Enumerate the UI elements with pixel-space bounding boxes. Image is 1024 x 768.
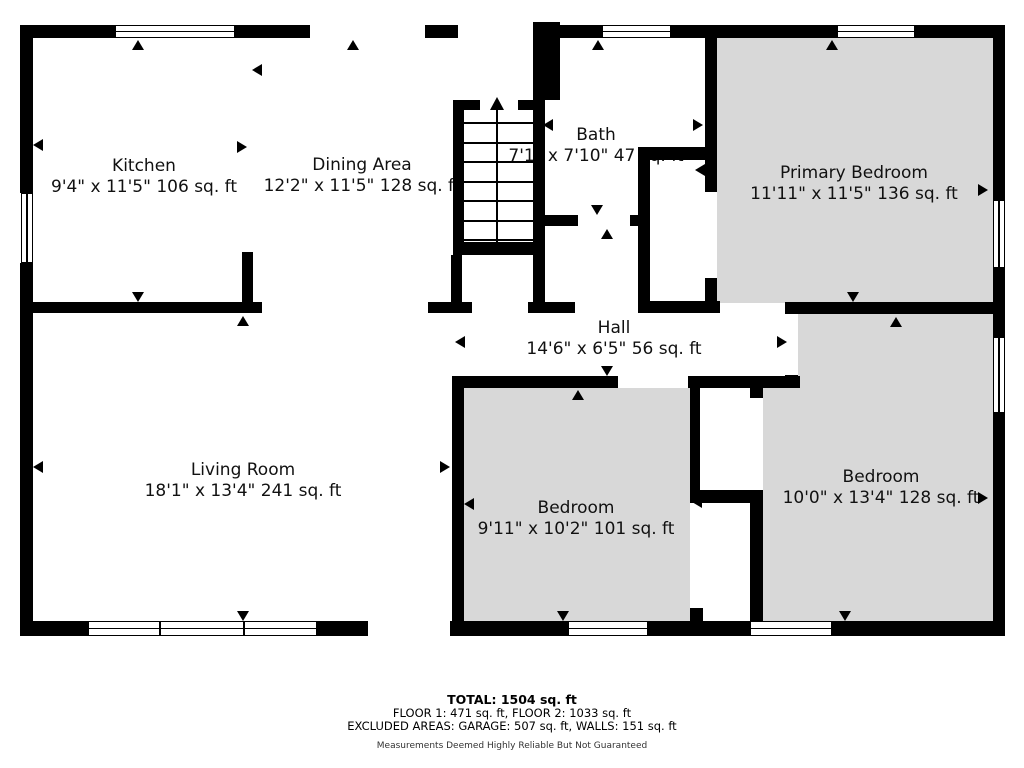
room-label-dining-area: Dining Area 12'2" x 11'5" 128 sq. ft <box>264 155 461 197</box>
wall-segment <box>705 278 717 303</box>
window <box>160 621 244 636</box>
marker-arrow-icon <box>592 40 604 50</box>
window <box>568 621 648 636</box>
marker-arrow-icon <box>692 496 702 508</box>
wall-segment <box>317 621 368 636</box>
marker-arrow-icon <box>695 164 705 176</box>
room-label-kitchen: Kitchen 9'4" x 11'5" 106 sq. ft <box>51 156 237 198</box>
wall-segment <box>638 301 720 313</box>
marker-arrow-icon <box>978 184 988 196</box>
marker-arrow-icon <box>132 292 144 302</box>
marker-arrow-icon <box>347 40 359 50</box>
wall-segment <box>638 147 650 307</box>
marker-arrow-icon <box>237 316 249 326</box>
stair-tread <box>464 161 533 163</box>
marker-arrow-icon <box>826 40 838 50</box>
room-dimensions: 9'11" x 10'2" 101 sq. ft <box>478 519 675 540</box>
room-name: Dining Area <box>264 155 461 176</box>
wall-segment <box>993 413 1005 636</box>
wall-segment <box>450 621 568 636</box>
area-summary: TOTAL: 1504 sq. ft FLOOR 1: 471 sq. ft, … <box>0 693 1024 752</box>
window <box>750 621 832 636</box>
wall-segment <box>688 376 800 388</box>
window <box>88 621 160 636</box>
marker-arrow-icon <box>753 494 763 506</box>
marker-arrow-icon <box>572 390 584 400</box>
marker-arrow-icon <box>601 229 613 239</box>
wall-segment <box>20 25 33 193</box>
room-name: Kitchen <box>51 156 237 177</box>
room-name: Bedroom <box>783 467 980 488</box>
wall-segment <box>453 242 545 255</box>
room-dimensions: 10'0" x 13'4" 128 sq. ft <box>783 488 980 509</box>
stair-tread <box>464 220 533 222</box>
marker-arrow-icon <box>839 611 851 621</box>
wall-segment <box>705 160 717 192</box>
marker-arrow-icon <box>33 461 43 473</box>
room-label-living-room: Living Room 18'1" x 13'4" 241 sq. ft <box>145 460 342 502</box>
excluded-areas-text: EXCLUDED AREAS: GARAGE: 507 sq. ft, WALL… <box>0 720 1024 733</box>
wall-segment <box>832 621 1005 636</box>
wall-segment <box>452 376 618 388</box>
marker-arrow-icon <box>557 611 569 621</box>
stair-tread <box>464 142 533 144</box>
wall-segment <box>428 302 472 313</box>
wall-segment <box>453 100 480 110</box>
window <box>837 25 915 38</box>
wall-segment <box>993 268 1005 337</box>
room-label-hall: Hall 14'6" x 6'5" 56 sq. ft <box>526 318 701 360</box>
stairs-up-arrow-icon <box>490 97 504 110</box>
stair-tread <box>464 239 533 241</box>
window <box>602 25 671 38</box>
room-name: Living Room <box>145 460 342 481</box>
room-dimensions: 14'6" x 6'5" 56 sq. ft <box>526 339 701 360</box>
marker-arrow-icon <box>440 461 450 473</box>
wall-segment <box>993 25 1005 200</box>
marker-arrow-icon <box>777 336 787 348</box>
marker-arrow-icon <box>237 611 249 621</box>
wall-segment <box>451 255 462 302</box>
room-label-bedroom-right: Bedroom 10'0" x 13'4" 128 sq. ft <box>783 467 980 509</box>
wall-segment <box>20 621 88 636</box>
marker-arrow-icon <box>252 64 262 76</box>
marker-arrow-icon <box>464 498 474 510</box>
window <box>993 337 1005 413</box>
wall-segment <box>750 503 763 621</box>
window <box>21 193 33 263</box>
marker-arrow-icon <box>543 119 553 131</box>
stair-center-line <box>496 110 498 242</box>
stair-tread <box>464 181 533 183</box>
marker-arrow-icon <box>33 139 43 151</box>
wall-segment <box>533 100 545 312</box>
wall-segment <box>533 22 560 100</box>
room-dimensions: 11'11" x 11'5" 136 sq. ft <box>750 184 958 205</box>
wall-segment <box>452 376 464 621</box>
wall-segment <box>425 25 458 38</box>
marker-arrow-icon <box>847 292 859 302</box>
marker-arrow-icon <box>132 40 144 50</box>
marker-arrow-icon <box>237 141 247 153</box>
room-label-bedroom-left: Bedroom 9'11" x 10'2" 101 sq. ft <box>478 498 675 540</box>
marker-arrow-icon <box>455 336 465 348</box>
wall-segment <box>528 302 575 313</box>
wall-segment <box>453 100 464 242</box>
room-dimensions: 9'4" x 11'5" 106 sq. ft <box>51 177 237 198</box>
room-name: Primary Bedroom <box>750 163 958 184</box>
room-label-primary-bedroom: Primary Bedroom 11'11" x 11'5" 136 sq. f… <box>750 163 958 205</box>
marker-arrow-icon <box>591 205 603 215</box>
window <box>244 621 317 636</box>
wall-segment <box>671 25 837 38</box>
stair-tread <box>464 200 533 202</box>
marker-arrow-icon <box>978 492 988 504</box>
room-dimensions: 12'2" x 11'5" 128 sq. ft <box>264 176 461 197</box>
wall-segment <box>20 263 33 636</box>
floor-plan: Kitchen 9'4" x 11'5" 106 sq. ft Dining A… <box>0 0 1024 768</box>
wall-segment <box>32 302 262 313</box>
wall-segment <box>235 25 310 38</box>
wall-segment <box>705 37 717 160</box>
marker-arrow-icon <box>693 119 703 131</box>
window <box>115 25 235 38</box>
wall-segment <box>545 215 578 226</box>
wall-segment <box>750 387 763 398</box>
room-name: Bedroom <box>478 498 675 519</box>
marker-arrow-icon <box>601 366 613 376</box>
window <box>993 200 1005 268</box>
wall-segment <box>20 25 115 38</box>
room-dimensions: 18'1" x 13'4" 241 sq. ft <box>145 481 342 502</box>
marker-arrow-icon <box>890 317 902 327</box>
wall-segment <box>915 25 1005 38</box>
wall-segment <box>690 608 703 621</box>
stair-tread <box>464 122 533 124</box>
total-area-text: TOTAL: 1504 sq. ft <box>0 693 1024 707</box>
disclaimer-text: Measurements Deemed Highly Reliable But … <box>0 741 1024 752</box>
room-name: Hall <box>526 318 701 339</box>
wall-segment <box>648 621 750 636</box>
wall-segment <box>785 302 993 314</box>
wall-segment <box>690 387 700 490</box>
